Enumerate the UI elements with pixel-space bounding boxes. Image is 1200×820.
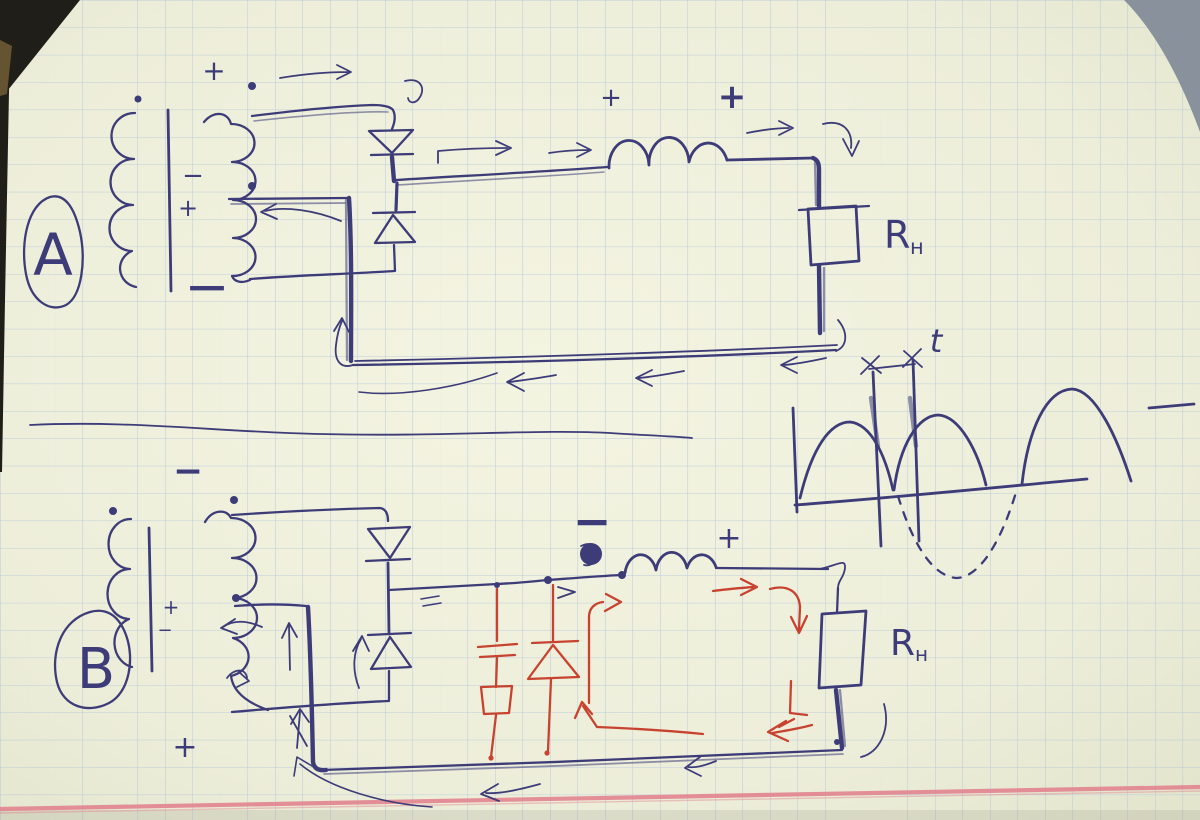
bottom-edge-shadow — [0, 810, 1200, 820]
time-label: t — [930, 322, 944, 360]
plus-mark: + — [172, 730, 197, 765]
wire-to-load-a — [727, 158, 813, 160]
load-label-b-sub: н — [915, 642, 928, 666]
junction-dot — [494, 582, 500, 588]
center-tap-wire-a — [229, 198, 347, 199]
minus-mark: − — [157, 620, 172, 641]
plus-mark-bold: + — [718, 77, 747, 117]
plus-mark: + — [600, 83, 622, 113]
load-top-lead-a-double — [815, 162, 816, 205]
polarity-dot — [135, 96, 142, 103]
polarity-dot — [232, 594, 240, 602]
plus-mark: + — [178, 194, 198, 222]
load-label-a-sub: н — [910, 235, 924, 259]
minus-mark-bold: − — [573, 494, 612, 548]
polarity-dot — [248, 82, 256, 90]
minus-mark: − — [184, 255, 229, 318]
label-a-text: A — [33, 221, 73, 289]
load-top-lead-b — [837, 588, 838, 613]
label-b-text: B — [77, 637, 115, 702]
diode-node-wire-b — [388, 563, 389, 634]
center-tap-drop-a-double — [346, 200, 347, 360]
junction-dot — [544, 576, 552, 584]
center-tap-wire-a-double — [231, 203, 345, 204]
polarity-dot — [109, 507, 117, 515]
polarity-dot — [230, 496, 238, 504]
junction-dot — [834, 739, 840, 745]
grid — [0, 0, 1200, 820]
polarity-dot — [248, 182, 256, 190]
minus-mark-bold: − — [173, 451, 203, 492]
load-bottom-lead-a — [819, 266, 820, 333]
center-tap-drop-a — [349, 198, 351, 361]
notebook-photo: A + − + − — [0, 0, 1200, 820]
plus-mark: + — [716, 521, 741, 556]
load-label-b: R — [890, 623, 915, 664]
minus-mark: − — [182, 161, 204, 191]
plus-mark: + — [163, 595, 180, 619]
plus-mark: + — [202, 54, 225, 87]
load-label-a: R — [884, 213, 910, 257]
junction-dot-red — [544, 750, 549, 755]
junction-dot-red — [488, 755, 493, 760]
wire-to-load-b — [716, 568, 828, 569]
